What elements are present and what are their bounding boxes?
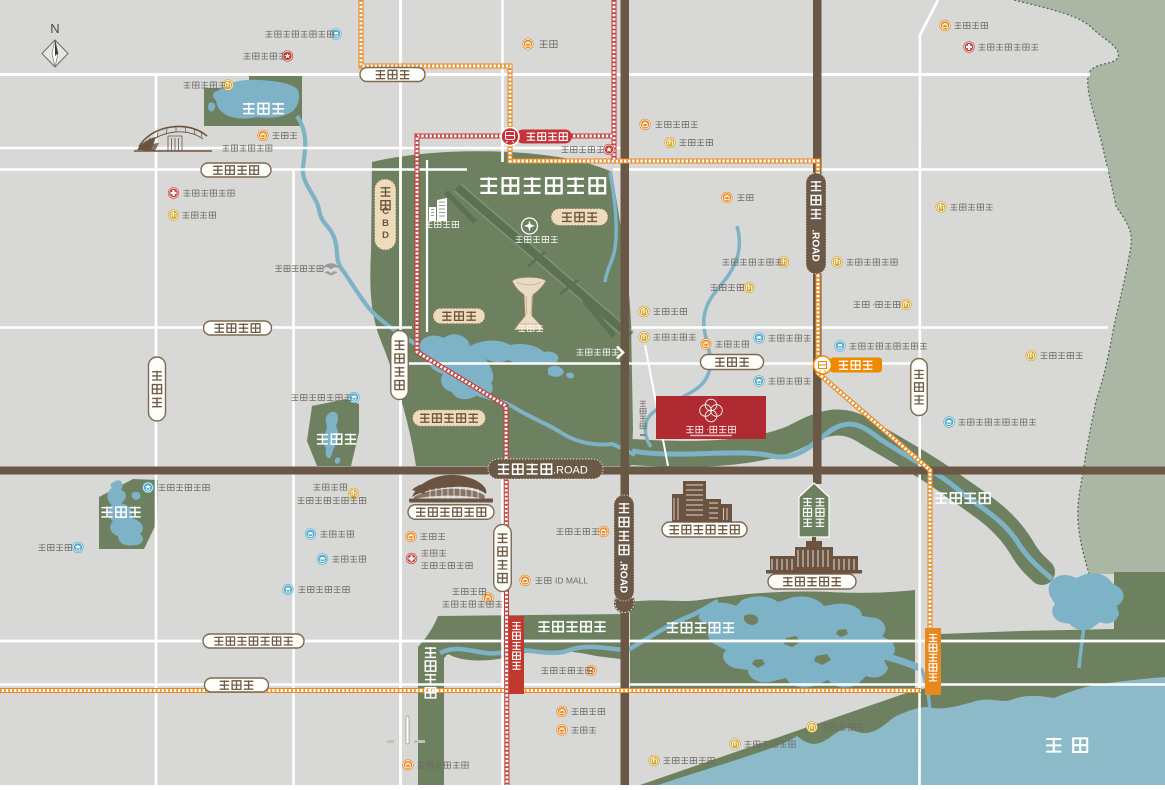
svg-text:.ROAD: .ROAD	[553, 465, 588, 477]
svg-text:.ROAD: .ROAD	[810, 229, 821, 261]
svg-text:C: C	[382, 206, 389, 217]
svg-text:N: N	[50, 21, 59, 36]
svg-text:B: B	[382, 218, 389, 229]
svg-text:.ROAD: .ROAD	[618, 561, 629, 593]
svg-text:ID MALL: ID MALL	[555, 576, 588, 586]
svg-text:D: D	[382, 230, 389, 241]
